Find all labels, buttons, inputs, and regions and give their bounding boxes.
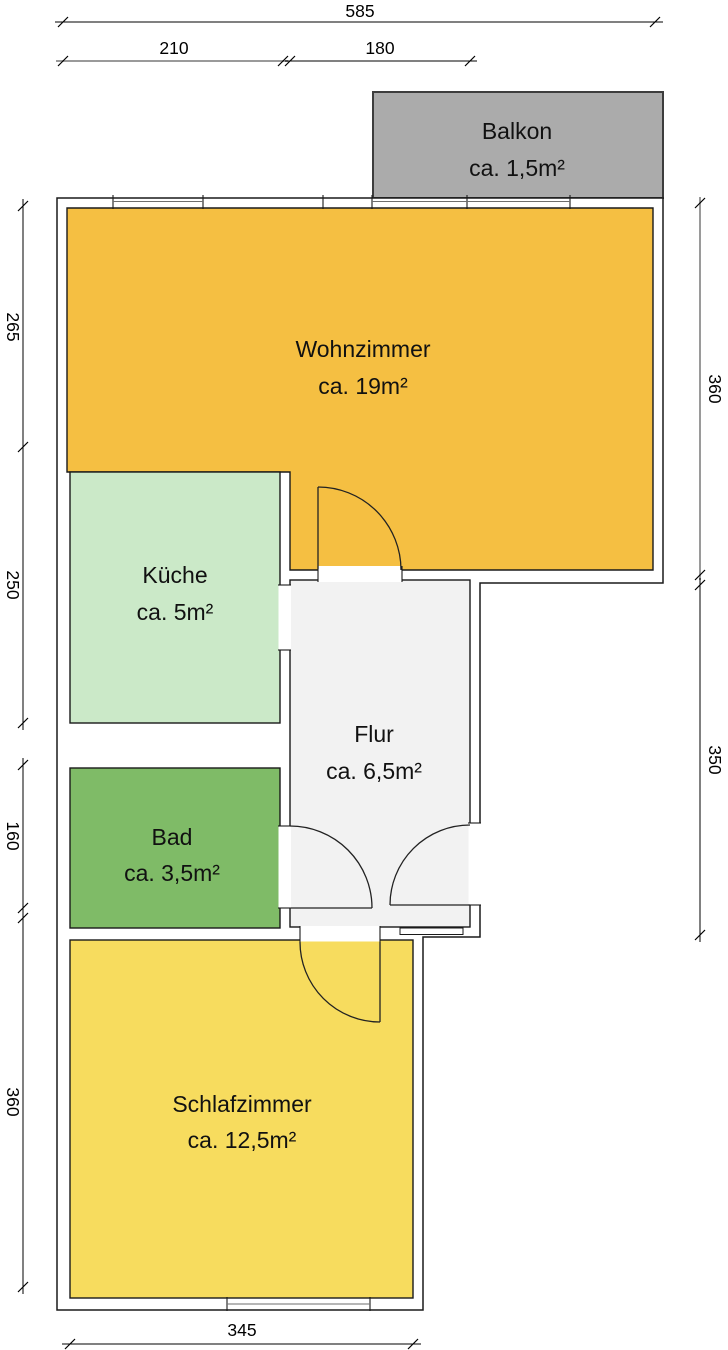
floor-plan-svg: Balkon ca. 1,5m² Wohnzimmer ca. 19m² Küc… (0, 0, 728, 1350)
dim-value: 345 (227, 1320, 256, 1340)
dim-bottom: 345 (62, 1320, 421, 1349)
entrance-threshold (400, 928, 463, 935)
flur-name-label: Flur (354, 721, 394, 747)
wohnzimmer-name-label: Wohnzimmer (295, 336, 430, 362)
dim-value: 250 (3, 570, 23, 599)
floorplan-canvas: Balkon ca. 1,5m² Wohnzimmer ca. 19m² Küc… (0, 0, 728, 1350)
dim-value: 265 (3, 312, 23, 341)
balkon-area-label: ca. 1,5m² (469, 155, 565, 181)
schlafzimmer-area-label: ca. 12,5m² (188, 1127, 297, 1153)
room-flur (290, 580, 470, 927)
room-kueche (70, 472, 280, 723)
dim-value: 350 (705, 745, 725, 774)
dim-value: 210 (159, 38, 188, 58)
door-opening (318, 566, 402, 582)
bad-name-label: Bad (152, 824, 193, 850)
schlafzimmer-name-label: Schlafzimmer (172, 1091, 312, 1117)
kueche-name-label: Küche (142, 562, 207, 588)
door-opening (469, 823, 482, 905)
wall-opening (279, 585, 292, 650)
room-schlafzimmer (70, 940, 413, 1298)
dim-top-segments: 210 180 (56, 38, 477, 66)
door-opening (279, 826, 292, 908)
dim-value: 360 (705, 374, 725, 403)
dim-value: 360 (3, 1087, 23, 1116)
balkon-name-label: Balkon (482, 118, 552, 144)
kueche-opening (278, 585, 291, 650)
dim-value: 180 (365, 38, 394, 58)
dim-right-chain: 360 350 (695, 197, 725, 942)
kueche-area-label: ca. 5m² (137, 599, 214, 625)
dim-top-total: 585 (55, 1, 663, 27)
wohnzimmer-area-label: ca. 19m² (318, 373, 408, 399)
dim-value: 585 (345, 1, 374, 21)
dim-value: 160 (3, 821, 23, 850)
bad-area-label: ca. 3,5m² (124, 860, 220, 886)
balcony-area (373, 92, 663, 198)
flur-area-label: ca. 6,5m² (326, 758, 422, 784)
door-opening (300, 926, 380, 942)
balcony (373, 92, 663, 198)
dim-left-chain: 265 250 160 360 (3, 199, 28, 1294)
